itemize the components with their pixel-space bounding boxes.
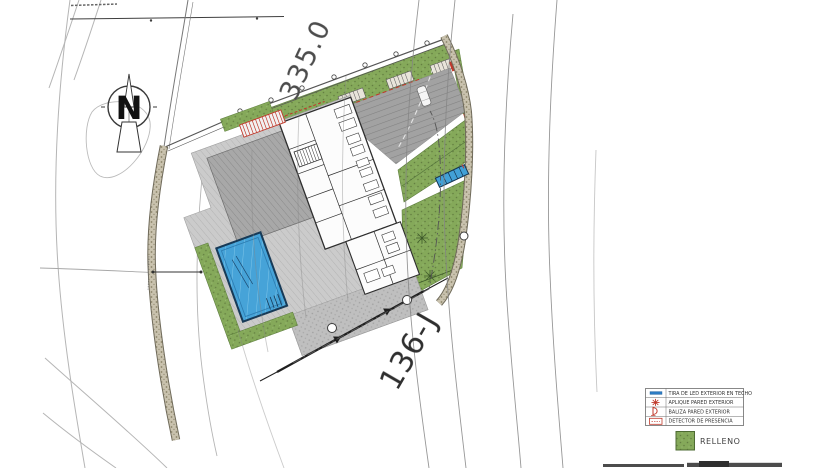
- fill-legend: RELLENO: [676, 432, 740, 451]
- relleno-swatch: [676, 432, 695, 451]
- legend-row-label: BALIZA PARED EXTERIOR: [669, 409, 731, 415]
- legend-table: TIRA DE LED EXTERIOR EN TECHO APLIQUE PA…: [646, 389, 753, 426]
- wall-sconce-icon: [652, 399, 660, 406]
- legend-row-label: APLIQUE PARED EXTERIOR: [669, 400, 734, 406]
- site-plan-drawing: N 335.0 136-J TIRA DE LED EXTERIOR EN TE…: [0, 0, 819, 468]
- legend-row-label: DETECTOR DE PRESENCIA: [669, 419, 734, 425]
- title-block-edge: [603, 461, 782, 467]
- led-strip-icon: [650, 392, 662, 395]
- site-plan-sheet: N 335.0 136-J TIRA DE LED EXTERIOR EN TE…: [0, 0, 819, 468]
- north-letter: N: [116, 89, 143, 127]
- legend-row-label: TIRA DE LED EXTERIOR EN TECHO: [668, 391, 753, 397]
- relleno-label: RELLENO: [700, 437, 740, 446]
- boundary-wall-left: [152, 146, 177, 440]
- north-arrow: N: [101, 74, 157, 152]
- boundary-line-upper: [164, 0, 193, 149]
- road-edge-top: [70, 4, 284, 22]
